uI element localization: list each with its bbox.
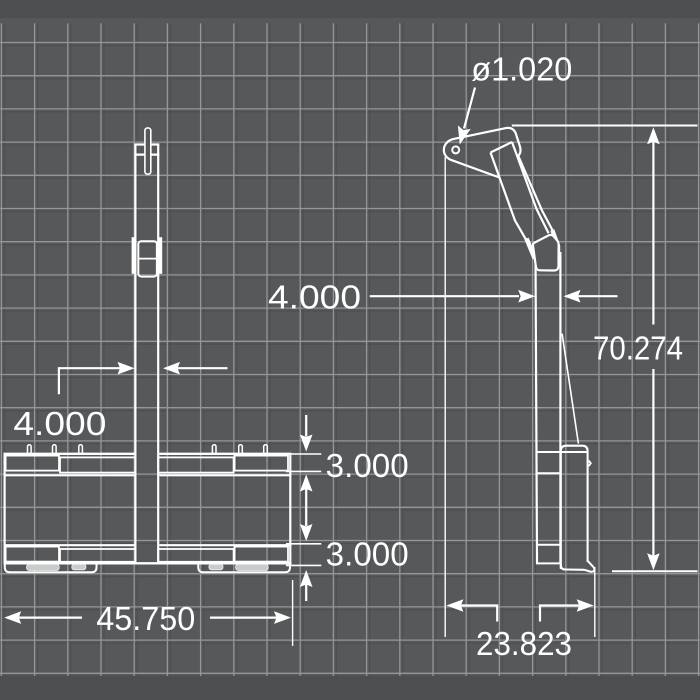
svg-text:ø1.020: ø1.020 bbox=[471, 50, 572, 87]
svg-text:3.000: 3.000 bbox=[326, 536, 409, 573]
svg-text:3.000: 3.000 bbox=[326, 447, 409, 484]
svg-text:23.823: 23.823 bbox=[476, 625, 572, 662]
svg-text:4.000: 4.000 bbox=[268, 279, 361, 316]
svg-text:4.000: 4.000 bbox=[13, 405, 106, 442]
svg-text:45.750: 45.750 bbox=[96, 600, 195, 637]
svg-text:70.274: 70.274 bbox=[593, 330, 683, 367]
